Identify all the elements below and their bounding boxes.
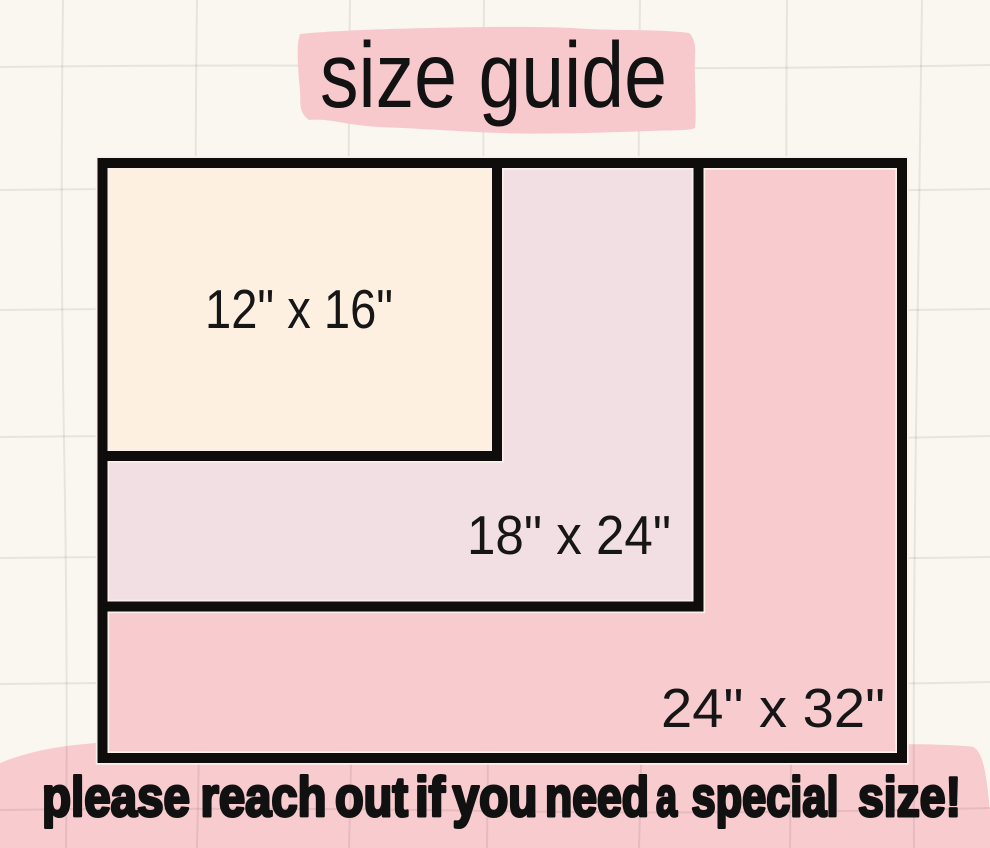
svg-text:reach: reach [201,765,327,828]
svg-text:please: please [42,765,190,828]
svg-text:size!: size! [858,765,961,828]
svg-text:a: a [656,765,678,828]
svg-text:size guide: size guide [320,23,667,127]
svg-text:24" x 32": 24" x 32" [661,677,885,739]
svg-text:if: if [415,765,445,828]
svg-text:you: you [453,765,538,828]
svg-text:12" x 16": 12" x 16" [205,278,393,340]
svg-text:special: special [692,765,839,828]
svg-text:need: need [545,765,649,828]
svg-text:out: out [335,765,408,828]
svg-text:18" x 24": 18" x 24" [467,504,671,566]
